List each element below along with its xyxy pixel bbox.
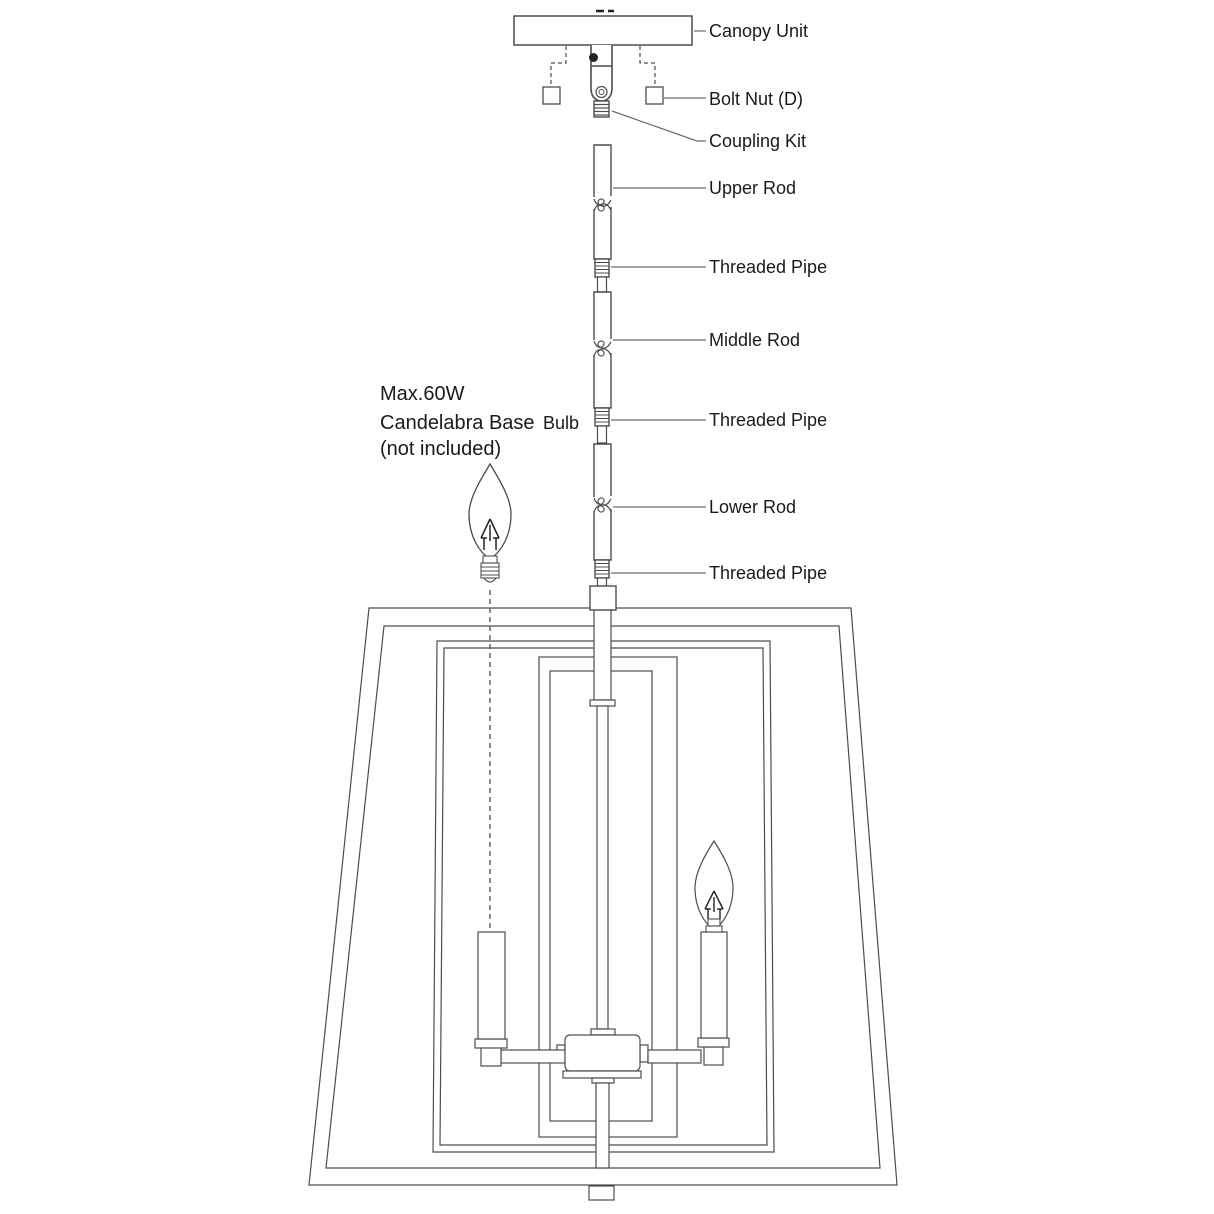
hanging-rods: [590, 145, 616, 610]
assembly-diagram: Canopy Unit Bolt Nut (D) Coupling Kit Up…: [0, 0, 1214, 1214]
column-flange: [590, 700, 615, 706]
canopy-assembly: [514, 11, 692, 117]
diagram-canvas: Canopy Unit Bolt Nut (D) Coupling Kit Up…: [0, 0, 1214, 1214]
middle-rod: [594, 292, 611, 408]
spare-bulb-neck: [483, 556, 497, 563]
lantern-entry-socket: [590, 586, 616, 610]
left-candle-flange: [475, 1039, 507, 1048]
column-thin-rod: [597, 706, 608, 1029]
right-bulb: [695, 841, 733, 932]
label-threaded-pipe-2: Threaded Pipe: [709, 410, 827, 430]
hub-top-collar: [591, 1029, 615, 1035]
center-column: [501, 610, 701, 1200]
label-middle-rod: Middle Rod: [709, 330, 800, 350]
coupling-nut: [596, 87, 607, 98]
label-threaded-pipe-1: Threaded Pipe: [709, 257, 827, 277]
left-socket-block: [481, 1047, 501, 1066]
bolt-nut-right: [646, 87, 663, 104]
label-lower-rod: Lower Rod: [709, 497, 796, 517]
bottom-finial: [589, 1186, 614, 1200]
left-candle-sleeve: [478, 932, 505, 1039]
right-candle-sleeve: [701, 932, 727, 1038]
bulb-note-line3: (not included): [380, 438, 501, 460]
bolt-nut-left: [543, 87, 560, 104]
right-bulb-base: [708, 919, 720, 926]
spare-bulb-screw-base: [481, 563, 499, 582]
lower-stem: [596, 1083, 609, 1168]
canopy-plate: [514, 16, 692, 45]
label-threaded-pipe-3: Threaded Pipe: [709, 563, 827, 583]
right-bulb-neck: [706, 926, 722, 932]
right-candle-flange: [698, 1038, 729, 1047]
right-bulb-glass: [695, 841, 733, 930]
bulb-note-line1: Max.60W: [380, 383, 465, 405]
right-socket-block: [704, 1047, 723, 1065]
hub-body: [565, 1035, 640, 1071]
label-upper-rod: Upper Rod: [709, 178, 796, 198]
label-coupling-kit: Coupling Kit: [709, 131, 806, 151]
spare-bulb-glass: [469, 464, 511, 559]
left-arm: [501, 1050, 565, 1063]
coupling-threads: [594, 101, 609, 117]
hub-bottom-collar: [592, 1078, 614, 1083]
leader-coupling-kit: [612, 111, 706, 141]
upper-rod: [594, 145, 611, 259]
lower-rod: [594, 444, 611, 560]
bulb-note-line2-suffix: Bulb: [543, 413, 579, 433]
label-canopy-unit: Canopy Unit: [709, 21, 808, 41]
label-bolt-nut: Bolt Nut (D): [709, 89, 803, 109]
stem-set-screw: [589, 53, 598, 62]
bulb-note: Max.60W Candelabra Base Bulb (not includ…: [380, 383, 579, 460]
right-arm: [648, 1050, 701, 1063]
hub-right-stub: [640, 1045, 648, 1062]
column-tube: [594, 610, 611, 700]
threaded-pipe-1: [595, 259, 609, 292]
threaded-pipe-2: [595, 408, 609, 443]
hub-flange: [563, 1071, 641, 1078]
bulb-note-line2: Candelabra Base: [380, 412, 535, 434]
threaded-pipe-3: [590, 560, 616, 610]
spare-bulb: [469, 464, 511, 582]
part-labels: Canopy Unit Bolt Nut (D) Coupling Kit Up…: [709, 21, 827, 583]
leader-lines: [611, 31, 706, 573]
